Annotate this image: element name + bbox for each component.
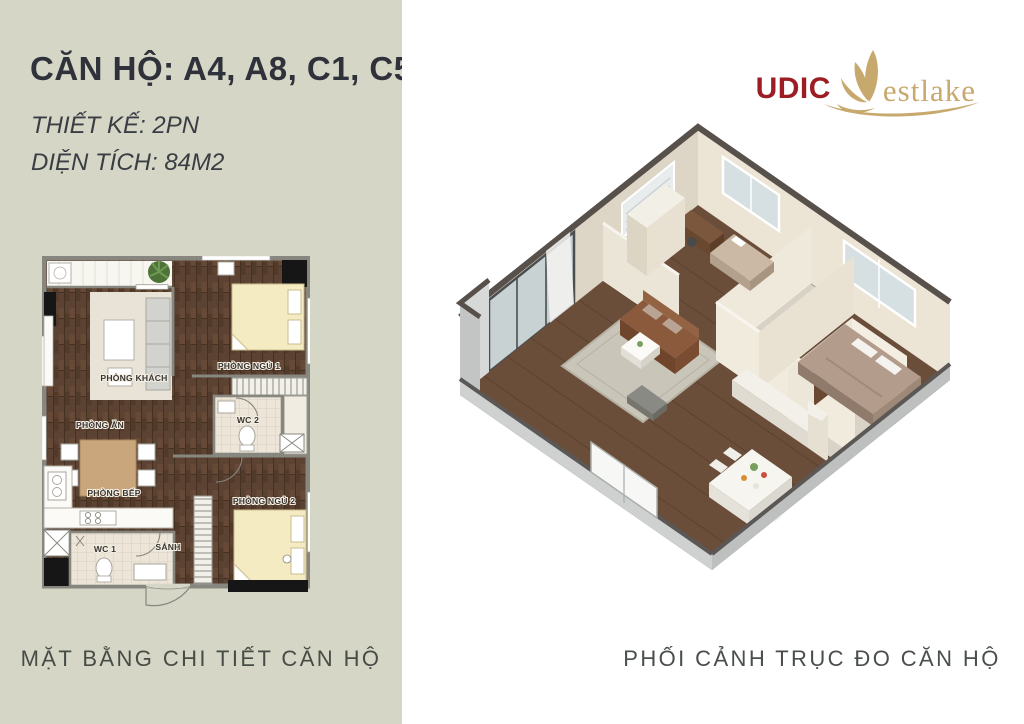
area-spec: DIỆN TÍCH: 84M2 xyxy=(31,149,371,177)
plan-window-bed1 xyxy=(307,298,310,364)
page-title: CĂN HỘ: A4, A8, C1, C5 xyxy=(30,50,402,88)
axon-caption: PHỐI CẢNH TRỤC ĐO CĂN HỘ xyxy=(612,646,1012,672)
brand-udic: UDIC xyxy=(756,74,831,118)
plan-wc2 xyxy=(214,396,307,454)
design-spec: THIẾT KẾ: 2PN xyxy=(31,112,371,140)
room-label-dining: PHÒNG ĂN xyxy=(76,419,124,430)
axon-panel: UDIC estlake xyxy=(402,0,1024,724)
brand-logo: UDIC estlake xyxy=(756,46,976,118)
plan-window-top xyxy=(202,256,270,260)
room-label-bedroom2: PHÒNG NGỦ 2 xyxy=(233,495,295,506)
plan-window-left2 xyxy=(42,416,46,460)
logo-swoosh-icon xyxy=(822,100,982,120)
floor-plan-caption: MẶT BẰNG CHI TIẾT CĂN HỘ xyxy=(0,646,402,672)
room-label-wc1: WC 1 xyxy=(94,544,116,554)
plan-hall-entry xyxy=(146,584,190,606)
room-label-bedroom1: PHÒNG NGỦ 1 xyxy=(218,360,280,371)
plan-wc1 xyxy=(70,532,174,586)
plant-icon xyxy=(148,261,170,283)
plan-shaft-bottom xyxy=(44,530,70,586)
floor-plan-svg: PHÒNG KHÁCH PHÒNG NGỦ 1 PHÒNG ĂN WC 2 PH… xyxy=(42,256,310,608)
room-label-kitchen: PHÒNG BẾP xyxy=(87,487,140,498)
axon-view-3d xyxy=(430,118,1010,588)
plan-balcony xyxy=(47,261,172,289)
room-label-wc2: WC 2 xyxy=(237,415,259,425)
room-label-living: PHÒNG KHÁCH xyxy=(100,372,167,383)
ac-unit-icon xyxy=(280,434,304,452)
floor-plan-panel: CĂN HỘ: A4, A8, C1, C5 THIẾT KẾ: 2PN DIỆ… xyxy=(0,0,402,724)
brochure-page: CĂN HỘ: A4, A8, C1, C5 THIẾT KẾ: 2PN DIỆ… xyxy=(0,0,1024,724)
room-label-hall: SẢNH xyxy=(155,541,180,552)
axon-svg xyxy=(430,118,1010,588)
floor-plan-2d: PHÒNG KHÁCH PHÒNG NGỦ 1 PHÒNG ĂN WC 2 PH… xyxy=(42,256,310,608)
plan-window-bed2 xyxy=(307,492,310,552)
